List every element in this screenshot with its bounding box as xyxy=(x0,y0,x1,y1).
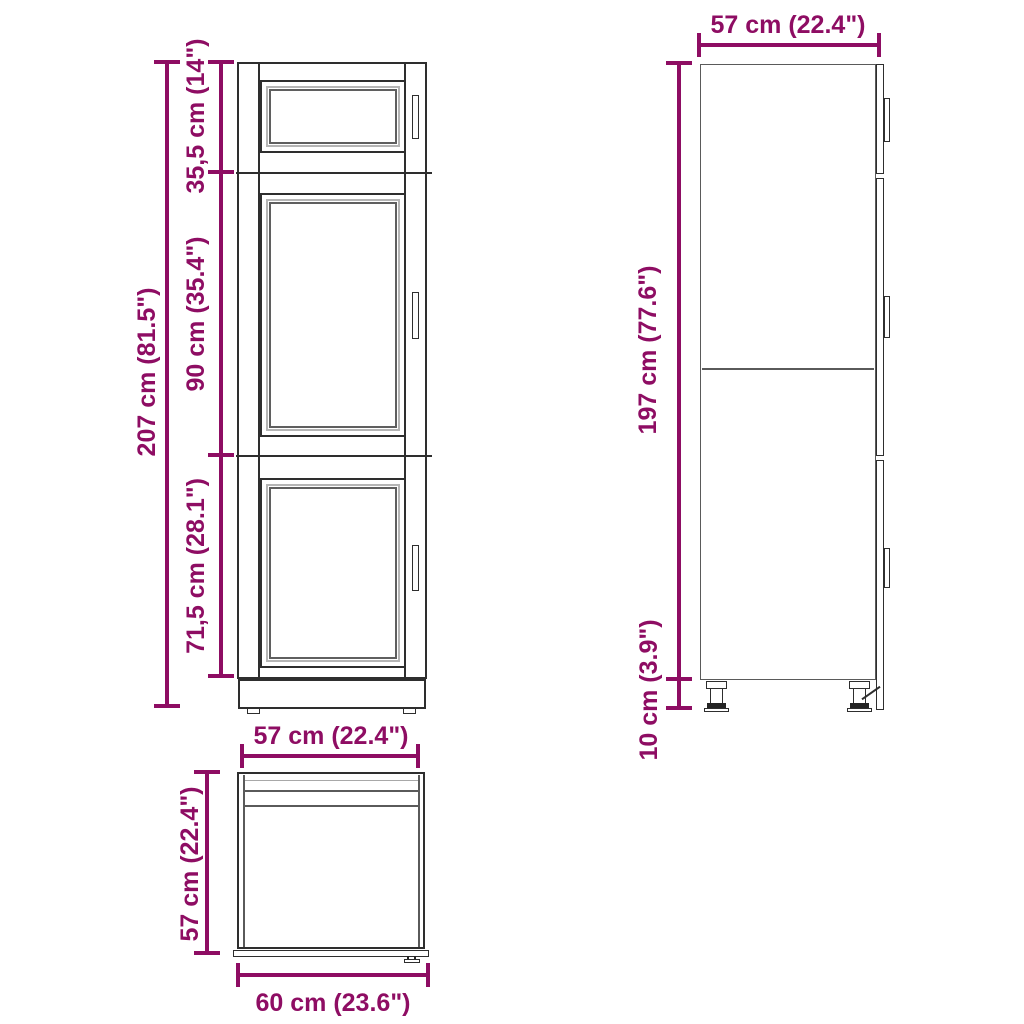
front-divider-line-top xyxy=(236,172,432,174)
front-door-middle xyxy=(260,193,406,437)
top-door-strip xyxy=(233,950,429,957)
leg-base xyxy=(704,708,729,712)
side-handle-middle xyxy=(884,296,890,338)
top-depth-dim-line xyxy=(205,772,209,955)
front-sections-tick-2 xyxy=(208,170,234,174)
front-section-top-label: 35,5 cm (14") xyxy=(181,16,211,216)
side-leg-tick-bottom xyxy=(666,706,692,710)
front-total-height-tick-top xyxy=(154,60,180,64)
top-depth-label: 57 cm (22.4") xyxy=(175,764,205,964)
front-foot-right xyxy=(403,708,416,714)
top-cabinet-body xyxy=(237,772,425,949)
top-overall-depth-tick-right xyxy=(426,963,430,987)
front-total-height-label: 207 cm (81.5") xyxy=(132,262,162,482)
front-section-bottom-label: 71,5 cm (28.1") xyxy=(181,456,211,676)
side-cabinet-body xyxy=(700,64,876,680)
side-door-edge-bottom xyxy=(876,460,884,710)
side-height-tick-top xyxy=(666,61,692,65)
front-divider-line-bottom xyxy=(236,455,432,457)
front-total-height-dim-line xyxy=(165,62,169,708)
front-handle-bottom xyxy=(412,545,419,591)
front-sections-dim-line xyxy=(219,62,223,678)
top-back-line-1 xyxy=(245,780,418,781)
front-sections-tick-4 xyxy=(208,674,234,678)
door-frame-inner xyxy=(269,487,397,659)
door-frame-inner xyxy=(269,202,397,428)
front-sections-tick-1 xyxy=(208,60,234,64)
front-sections-tick-3 xyxy=(208,453,234,457)
side-handle-top xyxy=(884,98,890,142)
top-width-tick-left xyxy=(240,744,244,768)
top-wall-right xyxy=(418,775,420,947)
side-height-label: 197 cm (77.6") xyxy=(633,235,663,465)
side-depth-dim-line xyxy=(699,43,879,47)
top-wall-left xyxy=(243,775,245,947)
top-width-dim-line xyxy=(242,754,420,758)
cabinet-dimension-diagram: 207 cm (81.5") 35,5 cm (14") 90 cm (35.4… xyxy=(0,0,1024,1024)
top-back-line-3 xyxy=(245,805,418,807)
top-handle-bar xyxy=(404,959,420,963)
front-section-middle-label: 90 cm (35.4") xyxy=(181,214,211,414)
front-handle-top xyxy=(412,95,419,139)
top-overall-depth-dim-line xyxy=(238,973,428,977)
top-overall-depth-label: 60 cm (23.6") xyxy=(228,988,438,1018)
door-frame-inner xyxy=(269,89,397,144)
side-handle-bottom xyxy=(884,548,890,588)
leg-base xyxy=(847,708,872,712)
front-total-height-tick-bottom xyxy=(154,704,180,708)
front-door-top xyxy=(260,80,406,153)
front-door-bottom xyxy=(260,478,406,668)
leg-stem xyxy=(710,688,723,704)
front-handle-middle xyxy=(412,292,419,339)
front-plinth xyxy=(238,679,426,709)
side-leg-label: 10 cm (3.9") xyxy=(634,600,664,780)
side-interior-line xyxy=(702,368,874,370)
top-width-label: 57 cm (22.4") xyxy=(231,721,431,751)
side-depth-label: 57 cm (22.4") xyxy=(688,10,888,40)
front-foot-left xyxy=(247,708,260,714)
top-overall-depth-tick-left xyxy=(236,963,240,987)
side-height-dim-line xyxy=(677,63,681,679)
side-door-edge-top xyxy=(876,64,884,174)
side-door-edge-middle xyxy=(876,178,884,456)
top-width-tick-right xyxy=(416,744,420,768)
top-back-line-2 xyxy=(245,790,418,792)
